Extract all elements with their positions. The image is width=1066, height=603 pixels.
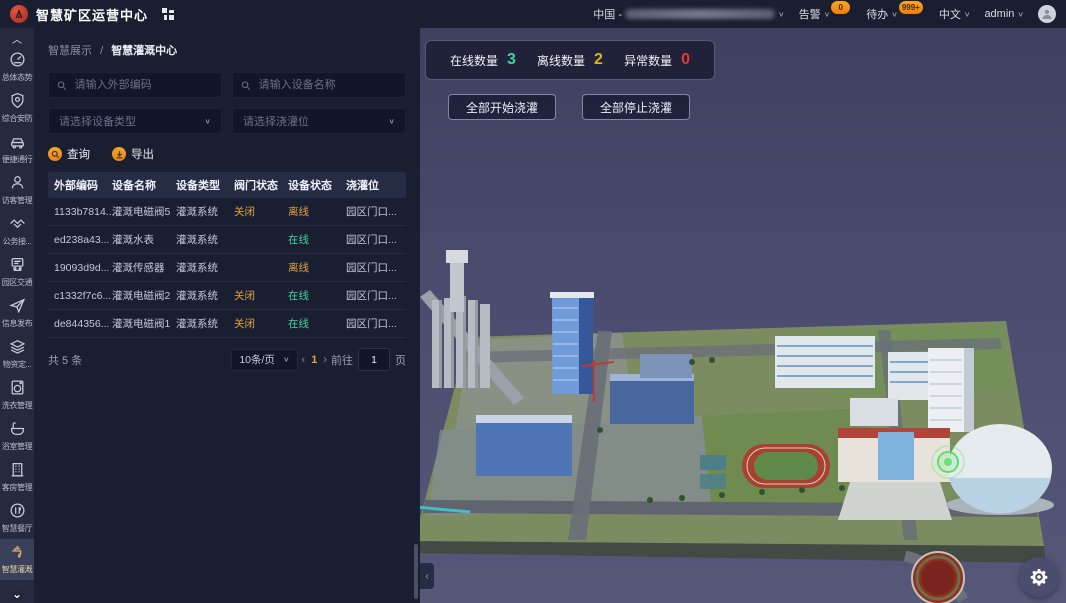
current-page[interactable]: 1 <box>311 354 317 366</box>
table-row[interactable]: de844356... 灌溉电磁阀1 灌溉系统 关闭 在线 园区门口... <box>48 310 406 338</box>
cell-type: 灌溉系统 <box>176 204 234 219</box>
gear-icon <box>1029 567 1049 587</box>
breadcrumb: 智慧展示 / 智慧灌溉中心 <box>48 42 406 58</box>
building-icon <box>9 461 26 478</box>
cell-type: 灌溉系统 <box>176 260 234 275</box>
cell-device-status: 离线 <box>288 204 346 219</box>
breadcrumb-parent[interactable]: 智慧展示 <box>48 45 92 57</box>
cell-code: 19093d9d... <box>54 262 112 274</box>
search-code-field <box>48 72 222 98</box>
search-name-input[interactable] <box>257 78 397 92</box>
user-menu[interactable]: admin ∨ <box>984 8 1024 20</box>
sidebar-item-laundry[interactable]: 洗衣管理 <box>0 375 34 416</box>
cell-device-status: 离线 <box>288 260 346 275</box>
alarm-menu[interactable]: 告警 ∨ 0 <box>799 6 853 22</box>
gauge-icon <box>9 51 26 68</box>
export-button[interactable]: 导出 <box>112 146 154 162</box>
query-search-icon <box>48 147 62 161</box>
traffic-icon <box>9 256 26 273</box>
table-row[interactable]: ed238a43... 灌溉水表 灌溉系统 在线 园区门口... <box>48 226 406 254</box>
irrigation-location-select[interactable]: 请选择浇灌位 ∨ <box>232 108 406 134</box>
cell-code: de844356... <box>54 318 112 330</box>
cell-name: 灌溉水表 <box>112 232 176 247</box>
panel-collapse-handle[interactable]: ‹ <box>420 563 434 589</box>
page-unit-label: 页 <box>395 352 406 368</box>
page-size-select[interactable]: 10条/页 ∨ <box>231 349 297 371</box>
avatar[interactable] <box>1038 5 1056 23</box>
cell-location: 园区门口... <box>346 260 400 275</box>
app-title: 智慧矿区运营中心 <box>36 5 148 24</box>
car-icon <box>9 133 26 150</box>
search-name-field <box>232 72 406 98</box>
cell-type: 灌溉系统 <box>176 288 234 303</box>
sidebar-item-visitor[interactable]: 访客管理 <box>0 170 34 211</box>
todo-menu[interactable]: 待办 ∨ 999+ <box>866 6 925 22</box>
todo-label: 待办 <box>866 6 888 22</box>
pagination: 共 5 条 10条/页 ∨ ‹ 1 › 前往 页 <box>48 348 406 371</box>
sidebar-item-irrigation[interactable]: 智慧灌溉 <box>0 539 34 580</box>
sidebar-collapse-up-icon[interactable]: ︿ <box>12 28 22 47</box>
faucet-icon <box>9 543 26 560</box>
panel-scrollbar[interactable] <box>414 544 418 599</box>
sidebar-item-overview[interactable]: 总体态势 <box>0 47 34 88</box>
chevron-down-icon: ∨ <box>964 10 971 19</box>
query-button[interactable]: 查询 <box>48 146 90 162</box>
search-icon <box>241 80 251 91</box>
sidebar-item-bathroom[interactable]: 浴室管理 <box>0 416 34 457</box>
table-row[interactable]: c1332f7c6... 灌溉电磁阀2 灌溉系统 关闭 在线 园区门口... <box>48 282 406 310</box>
cell-type: 灌溉系统 <box>176 316 234 331</box>
dining-icon <box>9 502 26 519</box>
search-icon <box>57 80 67 91</box>
status-stats-bar: 在线数量 3 离线数量 2 异常数量 0 <box>425 40 715 80</box>
cell-code: ed238a43... <box>54 234 112 246</box>
device-panel: 智慧展示 / 智慧灌溉中心 请选择设备类型 ∨ 请选择浇灌位 ∨ 查询 <box>34 28 420 603</box>
start-all-irrigation-button[interactable]: 全部开始浇灌 <box>448 94 556 120</box>
chevron-down-icon: ∨ <box>824 10 831 19</box>
language-menu[interactable]: 中文 ∨ <box>939 6 971 22</box>
cell-code: c1332f7c6... <box>54 290 112 302</box>
goto-label: 前往 <box>331 352 353 368</box>
cell-code: 1133b7814... <box>54 206 112 218</box>
cell-location: 园区门口... <box>346 232 400 247</box>
user-name: admin <box>984 8 1014 20</box>
sidebar-item-reception[interactable]: 公务接... <box>0 211 34 252</box>
table-row[interactable]: 1133b7814... 灌溉电磁阀5 灌溉系统 关闭 离线 园区门口... <box>48 198 406 226</box>
stat-offline: 离线数量 2 <box>537 51 603 69</box>
cell-device-status: 在线 <box>288 288 346 303</box>
next-page-button[interactable]: › <box>323 354 327 366</box>
goto-page-input[interactable] <box>358 348 390 371</box>
breadcrumb-current: 智慧灌溉中心 <box>111 45 177 57</box>
app-logo-icon <box>10 5 28 23</box>
chevron-down-icon: ∨ <box>388 117 395 126</box>
chevron-down-icon: ∨ <box>204 117 211 126</box>
bath-icon <box>9 420 26 437</box>
settings-gear-button[interactable] <box>1019 557 1059 597</box>
search-code-input[interactable] <box>73 78 213 92</box>
cell-location: 园区门口... <box>346 204 400 219</box>
redacted-region-text <box>625 9 775 19</box>
cell-location: 园区门口... <box>346 288 400 303</box>
stop-all-irrigation-button[interactable]: 全部停止浇灌 <box>582 94 690 120</box>
language-label: 中文 <box>939 6 961 22</box>
sidebar-item-security[interactable]: 综合安防 <box>0 88 34 129</box>
chevron-down-icon: ∨ <box>1017 10 1024 19</box>
alarm-label: 告警 <box>799 6 821 22</box>
sidebar-item-rooms[interactable]: 客房管理 <box>0 457 34 498</box>
sidebar: ︿ 总体态势 综合安防 便捷通行 访客管理 公务接... 园区交通 信息发布 物… <box>0 28 34 603</box>
handshake-icon <box>9 215 26 232</box>
layers-icon <box>9 338 26 355</box>
todo-count-badge: 999+ <box>899 1 923 14</box>
cell-name: 灌溉传感器 <box>112 260 176 275</box>
apps-grid-icon[interactable] <box>162 8 174 20</box>
cell-name: 灌溉电磁阀2 <box>112 288 176 303</box>
table-header: 外部编码 设备名称 设备类型 阀门状态 设备状态 浇灌位 <box>48 172 406 198</box>
stat-abnormal: 异常数量 0 <box>624 51 690 69</box>
total-count: 共 5 条 <box>48 352 231 368</box>
sidebar-item-traffic[interactable]: 园区交通 <box>0 252 34 293</box>
device-type-select[interactable]: 请选择设备类型 ∨ <box>48 108 222 134</box>
region-label: 中国 - <box>593 6 622 22</box>
sidebar-item-access[interactable]: 便捷通行 <box>0 129 34 170</box>
cell-name: 灌溉电磁阀1 <box>112 316 176 331</box>
top-header: 智慧矿区运营中心 中国 - ∨ 告警 ∨ 0 待办 ∨ 999+ 中文 ∨ ad… <box>0 0 1066 28</box>
cell-location: 园区门口... <box>346 316 400 331</box>
cell-name: 灌溉电磁阀5 <box>112 204 176 219</box>
irrigation-actions: 全部开始浇灌 全部停止浇灌 <box>448 94 690 120</box>
visitor-icon <box>9 174 26 191</box>
sidebar-item-materials[interactable]: 物资定... <box>0 334 34 375</box>
cell-device-status: 在线 <box>288 316 346 331</box>
cell-device-status: 在线 <box>288 232 346 247</box>
export-download-icon <box>112 147 126 161</box>
alarm-count-badge: 0 <box>831 1 850 14</box>
chevron-down-icon: ∨ <box>283 355 290 364</box>
shield-icon <box>9 92 26 109</box>
stat-online: 在线数量 3 <box>450 51 516 69</box>
sidebar-item-publish[interactable]: 信息发布 <box>0 293 34 334</box>
send-icon <box>9 297 26 314</box>
chevron-down-icon: ∨ <box>891 10 898 19</box>
cell-valve-status: 关闭 <box>234 288 288 303</box>
chevron-down-icon: ∨ <box>778 10 785 19</box>
sidebar-scroll-down-icon[interactable]: ⌄ <box>0 587 34 601</box>
sidebar-item-dining[interactable]: 智慧餐厅 <box>0 498 34 539</box>
cell-type: 灌溉系统 <box>176 232 234 247</box>
washer-icon <box>9 379 26 396</box>
cell-valve-status: 关闭 <box>234 316 288 331</box>
cell-valve-status: 关闭 <box>234 204 288 219</box>
table-row[interactable]: 19093d9d... 灌溉传感器 灌溉系统 离线 园区门口... <box>48 254 406 282</box>
region-selector[interactable]: 中国 - ∨ <box>593 6 784 22</box>
prev-page-button[interactable]: ‹ <box>302 354 306 366</box>
